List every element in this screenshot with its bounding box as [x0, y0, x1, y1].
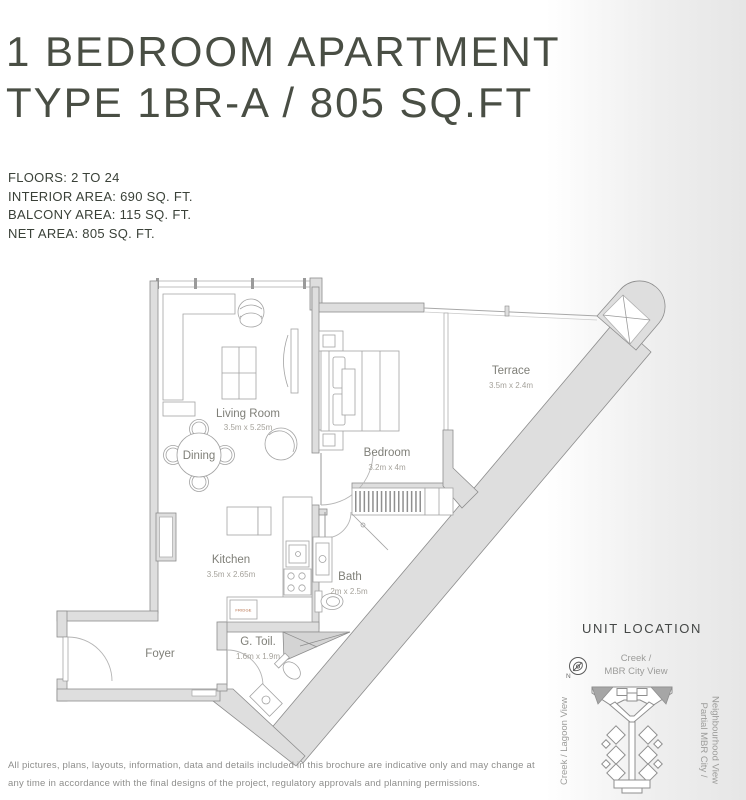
- foyer-step-wall: [57, 611, 158, 621]
- tv-unit: [291, 329, 298, 393]
- room-label-terrace: Terrace: [492, 365, 530, 377]
- page-title-line2: TYPE 1BR-A / 805 SQ.FT: [6, 77, 561, 128]
- page-title: 1 BEDROOM APARTMENT TYPE 1BR-A / 805 SQ.…: [6, 26, 561, 128]
- armchair: [265, 428, 297, 460]
- room-dims-gtoilet: 1.6m x 1.9m: [236, 652, 280, 661]
- bath-door-arc: [325, 512, 351, 538]
- window-mullion: [251, 278, 254, 289]
- room-label-gtoilet: G. Toil.: [240, 636, 276, 648]
- kitchen-island-side: [258, 507, 271, 535]
- plant-pot: [240, 313, 262, 327]
- disclaimer: All pictures, plans, layouts, informatio…: [8, 757, 535, 792]
- room-label-foyer: Foyer: [145, 648, 175, 660]
- view-label-top-line1: Creek /: [621, 653, 652, 664]
- building-footprint: [592, 687, 672, 793]
- shower-screen: [352, 514, 388, 550]
- view-label-right-line2: Neighbourhood View: [710, 696, 721, 784]
- entry-sill: [192, 690, 216, 696]
- gtoilet-wall-top: [217, 622, 227, 650]
- wardrobe: [352, 488, 425, 515]
- room-dims-kitchen: 3.5m x 2.65m: [207, 570, 256, 579]
- fridge-label: FRIDGE: [235, 608, 251, 613]
- view-label-top-line2: MBR City View: [604, 666, 667, 677]
- room-dims-bath: 2m x 2.5m: [330, 587, 368, 596]
- compass-icon: [570, 658, 587, 675]
- view-label-right-line1: Partial MBR City /: [698, 703, 709, 778]
- bedroom-top-wall: [318, 303, 424, 312]
- room-label-bath: Bath: [338, 571, 362, 583]
- view-label-left: Creek / Lagoon View: [559, 697, 570, 785]
- disclaimer-line1: All pictures, plans, layouts, informatio…: [8, 757, 535, 775]
- sofa-end-table: [163, 402, 195, 416]
- spec-net-area: NET AREA: 805 SQ. FT.: [8, 225, 193, 244]
- brochure-page: 1 BEDROOM APARTMENT TYPE 1BR-A / 805 SQ.…: [0, 0, 746, 800]
- page-title-line1: 1 BEDROOM APARTMENT: [6, 26, 561, 77]
- disclaimer-line2: any time in accordance with the final de…: [8, 775, 535, 793]
- spec-interior-area: INTERIOR AREA: 690 SQ. FT.: [8, 188, 193, 207]
- window-mullion: [303, 278, 306, 289]
- terrace-rail-inner: [424, 312, 597, 320]
- spec-balcony-area: BALCONY AREA: 115 SQ. FT.: [8, 206, 193, 225]
- entry-door-arc: [68, 637, 112, 681]
- bed-bench: [342, 369, 355, 415]
- kitchen-bottom-wall: [219, 622, 319, 632]
- tv-screen: [284, 335, 289, 387]
- room-dims-living-room: 3.5m x 5.25m: [224, 423, 273, 432]
- spec-floors: FLOORS: 2 TO 24: [8, 169, 193, 188]
- window-mullion: [194, 278, 197, 289]
- room-label-bedroom: Bedroom: [364, 447, 411, 459]
- terrace-rail: [424, 308, 599, 316]
- room-label-living-room: Living Room: [216, 408, 280, 420]
- gtoilet-wall-bottom: [217, 684, 227, 691]
- entry-door-leaf: [63, 637, 68, 681]
- living-bedroom-wall: [312, 287, 319, 453]
- apartment-specs: FLOORS: 2 TO 24 INTERIOR AREA: 690 SQ. F…: [8, 169, 193, 243]
- living-left-wall: [150, 281, 158, 613]
- unit-location-diagram: N Creek / MBR City View Creek / Lagoon V…: [540, 640, 746, 800]
- room-label-dining: Dining: [183, 450, 216, 462]
- terrace-rail-post: [505, 306, 509, 316]
- room-label-kitchen: Kitchen: [212, 554, 250, 566]
- compass-north-label: N: [566, 673, 571, 680]
- wall-column-inner: [160, 517, 173, 557]
- bath-top-stub: [319, 509, 327, 515]
- stove: [284, 569, 311, 595]
- room-dims-bedroom: 3.2m x 4m: [368, 463, 406, 472]
- bedroom-terrace-glass: [444, 313, 448, 430]
- foyer-left-wall-top: [57, 611, 67, 637]
- room-dims-terrace: 3.5m x 2.4m: [489, 381, 533, 390]
- living-window-wall: [152, 281, 318, 287]
- kitchen-island: [227, 507, 258, 535]
- unit-location-heading: UNIT LOCATION: [582, 621, 702, 636]
